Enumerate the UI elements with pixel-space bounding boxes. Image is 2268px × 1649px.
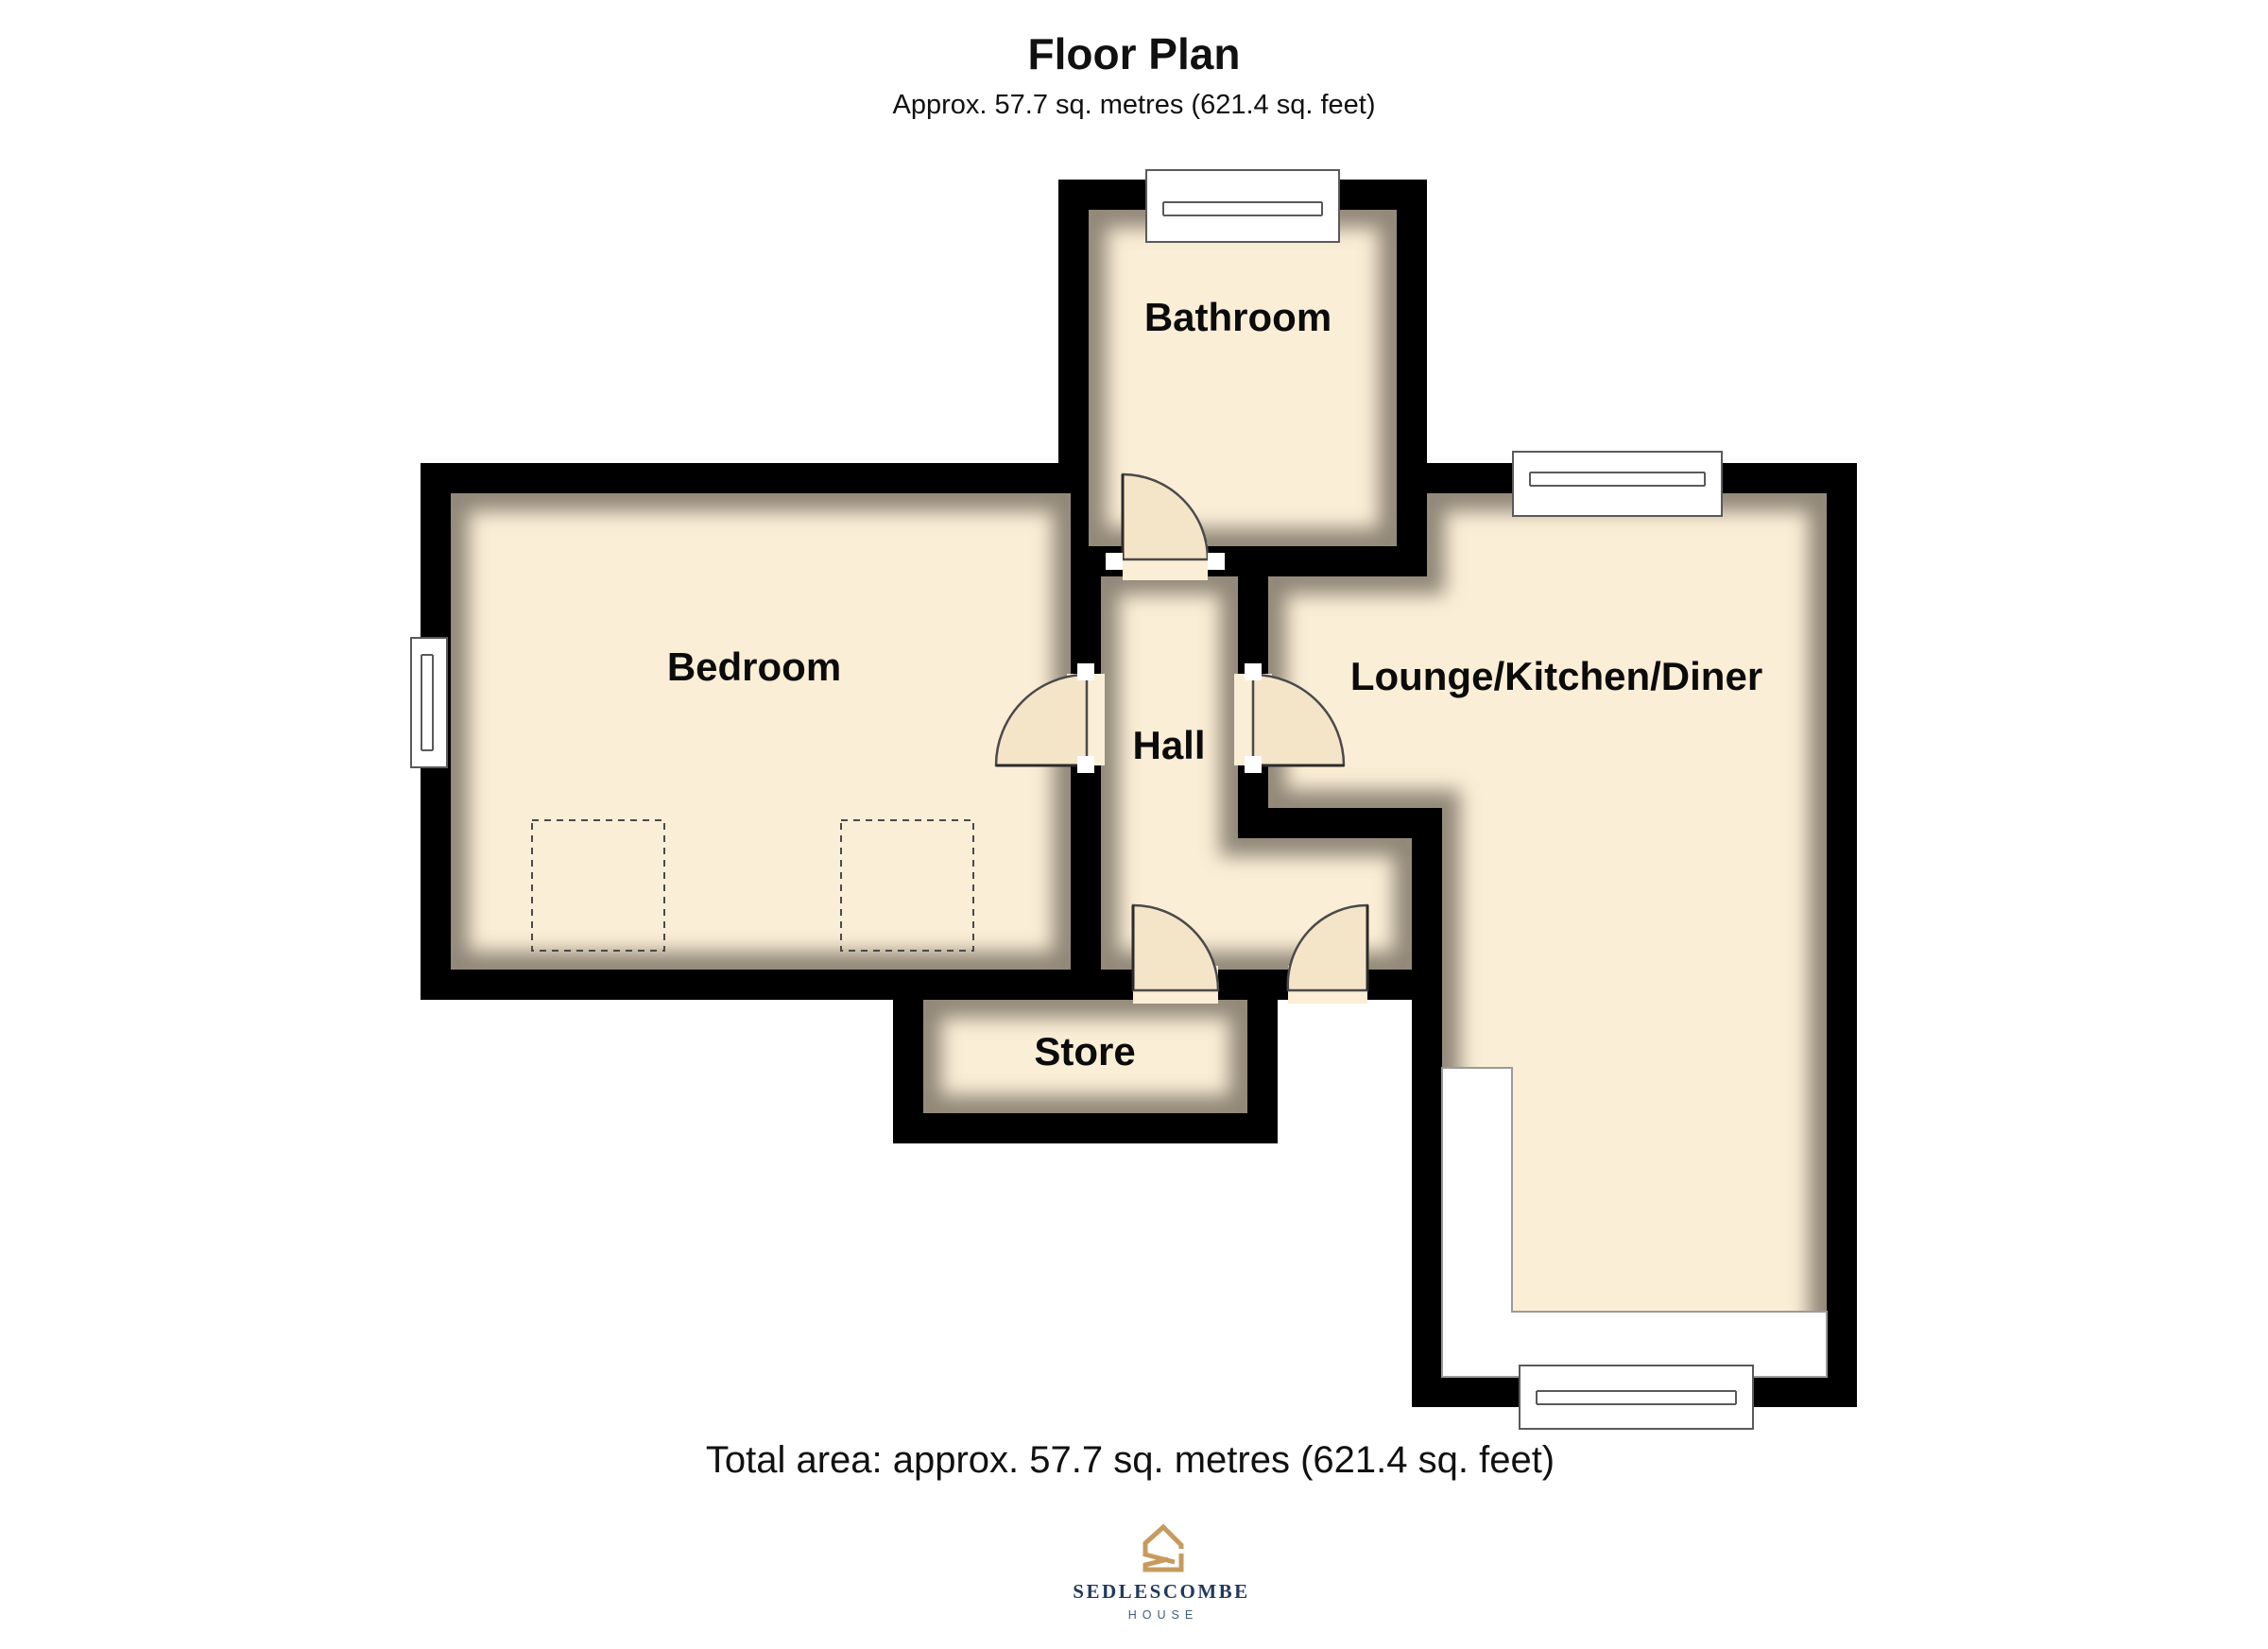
- floor-plan-page: Bathroom Bedroom Hall Lounge/Kitchen/Din…: [0, 0, 2268, 1649]
- agency-logo: SEDLESCOMBE HOUSE: [1073, 1527, 1249, 1622]
- bathroom-label: Bathroom: [1144, 295, 1332, 339]
- lounge-bottom-window: [1520, 1366, 1753, 1429]
- door-stop: [1077, 756, 1094, 773]
- hall-jog-wall: [1238, 808, 1442, 838]
- lounge-top-window: [1513, 452, 1722, 516]
- door-stop: [1245, 756, 1262, 773]
- hall-label: Hall: [1132, 723, 1205, 767]
- door-stop: [1106, 553, 1123, 570]
- bedroom-label: Bedroom: [667, 644, 841, 689]
- store-label: Store: [1034, 1029, 1135, 1074]
- page-subtitle: Approx. 57.7 sq. metres (621.4 sq. feet): [893, 90, 1376, 120]
- room-floors: [451, 210, 1827, 1377]
- door-stop: [1077, 663, 1094, 680]
- lounge-kitchen-diner-label: Lounge/Kitchen/Diner: [1350, 654, 1762, 698]
- page-title: Floor Plan: [1028, 29, 1241, 78]
- bathroom-window: [1146, 170, 1339, 242]
- agency-name: SEDLESCOMBE: [1073, 1580, 1249, 1603]
- bedroom-window: [411, 638, 447, 767]
- room-bedroom: [451, 493, 1071, 970]
- lounge-right-wall: [1827, 463, 1857, 1407]
- agency-tagline: HOUSE: [1128, 1608, 1198, 1622]
- door-stop: [1208, 553, 1225, 570]
- floor-plan-canvas: Bathroom Bedroom Hall Lounge/Kitchen/Din…: [0, 0, 2268, 1649]
- house-s-logo-icon: [1145, 1527, 1181, 1570]
- door-stop: [1245, 663, 1262, 680]
- lounge-lower-left-wall: [1412, 808, 1442, 1407]
- total-area-text: Total area: approx. 57.7 sq. metres (621…: [706, 1439, 1555, 1481]
